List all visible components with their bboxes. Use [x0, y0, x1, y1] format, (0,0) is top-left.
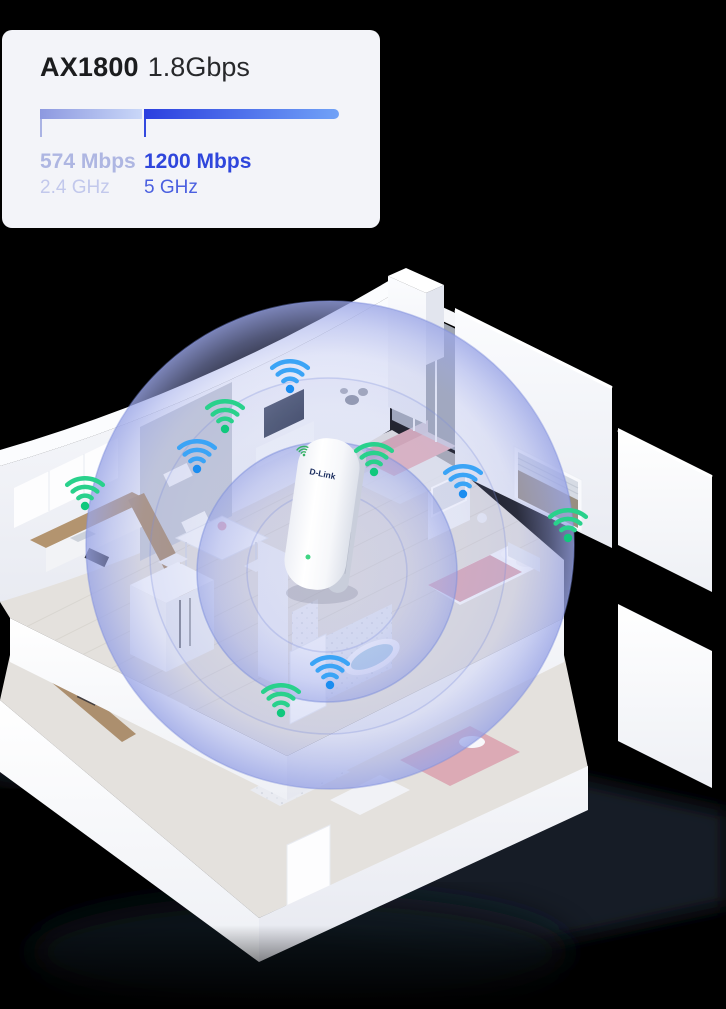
total-speed: 1.8Gbps: [148, 52, 250, 83]
band-label-2ghz: 574 Mbps 2.4 GHz: [40, 148, 136, 201]
band-name-2ghz: 2.4 GHz: [40, 175, 136, 201]
bar-tick-5ghz: [144, 119, 146, 137]
band-label-5ghz: 1200 Mbps 5 GHz: [144, 148, 251, 201]
band-name-5ghz: 5 GHz: [144, 175, 251, 201]
band-bar-2ghz: [40, 109, 142, 119]
spec-card: AX1800 1.8Gbps 574 Mbps 2.4 GHz 1200 Mbp…: [2, 30, 380, 228]
dual-band-bar: [40, 109, 339, 119]
throughput-2ghz: 574 Mbps: [40, 148, 136, 175]
model-name: AX1800: [40, 52, 139, 83]
status-led: [306, 555, 311, 560]
band-bar-5ghz: [144, 109, 339, 119]
marketing-hero: D-Link: [0, 0, 726, 1009]
throughput-5ghz: 1200 Mbps: [144, 148, 251, 175]
bottom-fade: [0, 925, 726, 1009]
bar-tick-2ghz: [40, 119, 42, 137]
card-title: AX1800 1.8Gbps: [40, 52, 250, 83]
